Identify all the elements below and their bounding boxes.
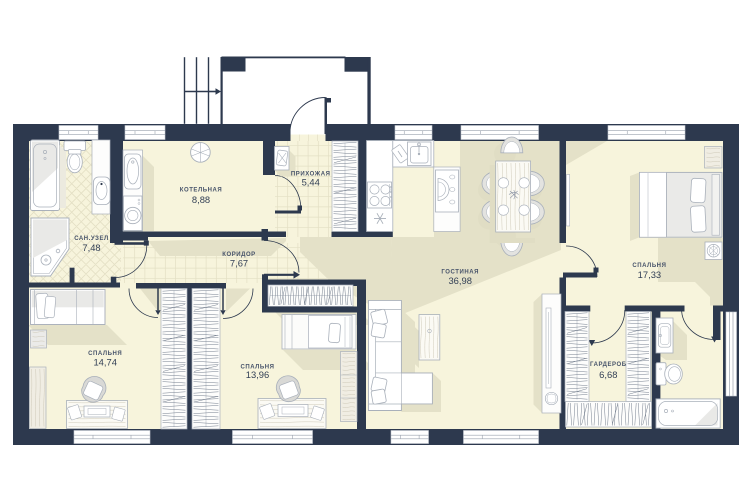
svg-text:5,44: 5,44 (302, 176, 320, 187)
svg-text:8,88: 8,88 (192, 194, 210, 205)
svg-text:14,74: 14,74 (93, 356, 116, 367)
svg-text:7,48: 7,48 (82, 242, 100, 253)
svg-text:13,96: 13,96 (246, 369, 269, 380)
svg-text:ГАРДЕРОБ: ГАРДЕРОБ (590, 362, 627, 368)
svg-text:36,98: 36,98 (448, 275, 471, 286)
svg-text:17,33: 17,33 (638, 269, 661, 280)
svg-text:КОТЕЛЬНАЯ: КОТЕЛЬНАЯ (180, 188, 222, 194)
svg-text:6,68: 6,68 (599, 369, 617, 380)
svg-text:7,67: 7,67 (230, 258, 248, 269)
